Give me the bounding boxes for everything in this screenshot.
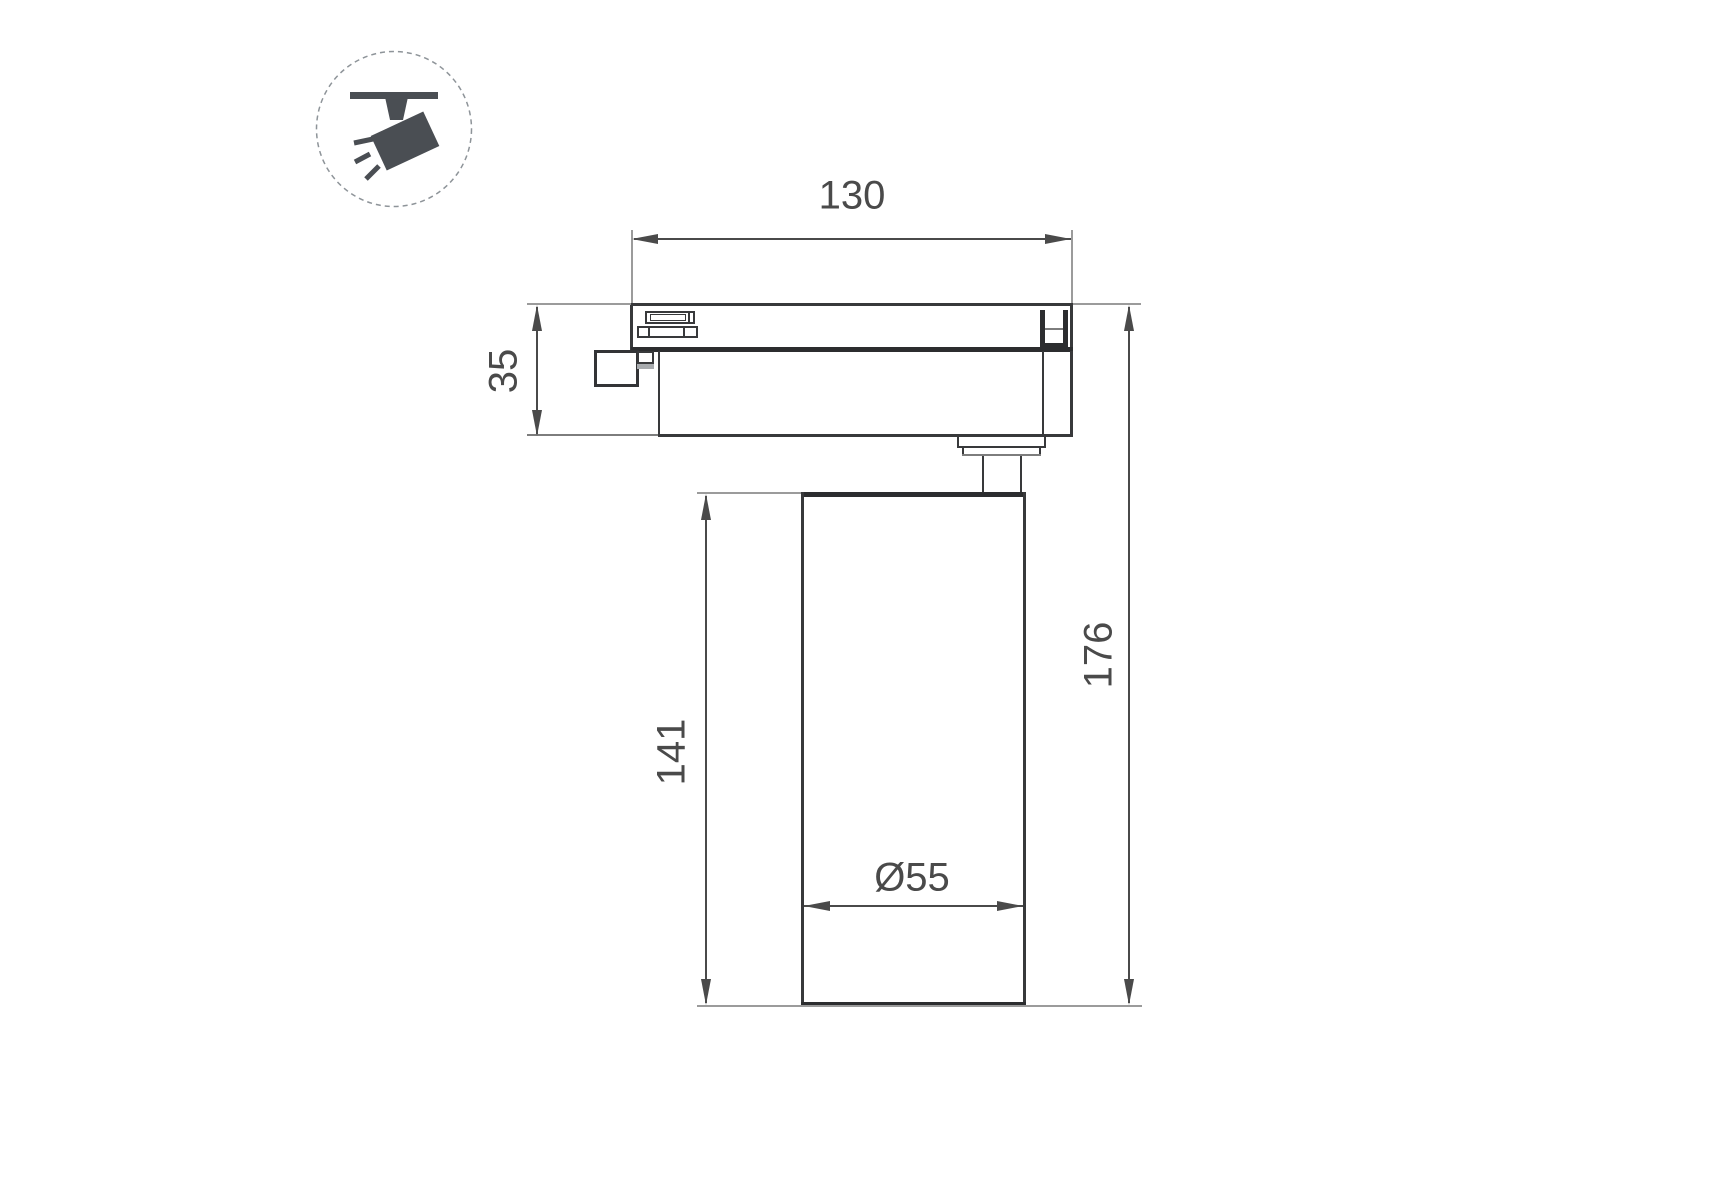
dim-141-arrow-up (701, 494, 711, 520)
housing-right-edge (1070, 351, 1073, 436)
dim-130-extension-right (1071, 230, 1073, 303)
adapter-clip-lower (637, 326, 698, 338)
dim-176-extension-bottom (697, 1005, 1142, 1007)
icon-lamp-head (371, 112, 440, 171)
contact-bottom-bar (1040, 343, 1068, 348)
housing-bottom-edge (658, 434, 1073, 437)
technical-drawing-canvas: 130 35 141 176 Ø55 (0, 0, 1715, 1200)
adapter-plate-right-edge (1070, 303, 1073, 351)
housing-inner-divider (1042, 351, 1044, 436)
adapter-clip-upper-inner (650, 314, 686, 321)
neck-stem-right (1020, 456, 1022, 495)
dim-55-arrow-right (997, 901, 1023, 911)
dim-55-arrow-left (804, 901, 830, 911)
dim-130-arrow-right (1045, 234, 1071, 244)
dim-176-line (1128, 307, 1130, 1003)
dim-55-label: Ø55 (874, 856, 950, 901)
contact-middle-rung (1045, 328, 1063, 330)
lamp-body-left-edge (801, 492, 804, 1005)
neck-step2-bottom (962, 454, 1041, 456)
dim-35-extension-top (527, 303, 631, 305)
dim-35-label: 35 (482, 349, 527, 394)
neck-step1-bottom (957, 446, 1046, 448)
adapter-side-latch-box (594, 350, 639, 387)
dim-35-arrow-down (532, 410, 542, 436)
dim-35-extension-bottom (527, 434, 658, 436)
icon-stem (385, 97, 408, 120)
adapter-clip-upper-divider (688, 312, 690, 323)
adapter-clip-lower-divider-right (683, 327, 685, 337)
housing-left-edge (658, 351, 660, 436)
dim-35-arrow-up (532, 305, 542, 331)
dim-176-label: 176 (1077, 622, 1122, 689)
adapter-plate-top-edge (631, 303, 1073, 306)
dim-176-arrow-down (1124, 979, 1134, 1005)
lamp-body-right-edge (1023, 492, 1026, 1005)
dim-141-arrow-down (701, 979, 711, 1005)
adapter-plate-bottom-edge (631, 347, 1073, 352)
dim-141-extension-top (697, 492, 801, 494)
dim-130-line (634, 238, 1071, 240)
dim-141-line (705, 496, 707, 1003)
lamp-body-top-edge (801, 492, 1026, 497)
dim-176-arrow-up (1124, 305, 1134, 331)
dim-130-arrow-left (632, 234, 658, 244)
adapter-latch-notch (637, 351, 654, 364)
neck-stem-left (982, 456, 984, 495)
dim-130-label: 130 (819, 174, 886, 219)
adapter-latch-notch-shade (637, 364, 654, 369)
adapter-plate-left-edge (630, 303, 633, 351)
adapter-clip-lower-divider-left (648, 327, 650, 337)
track-spotlight-icon (315, 50, 475, 210)
dim-55-line (804, 905, 1023, 907)
dim-141-label: 141 (650, 719, 695, 786)
